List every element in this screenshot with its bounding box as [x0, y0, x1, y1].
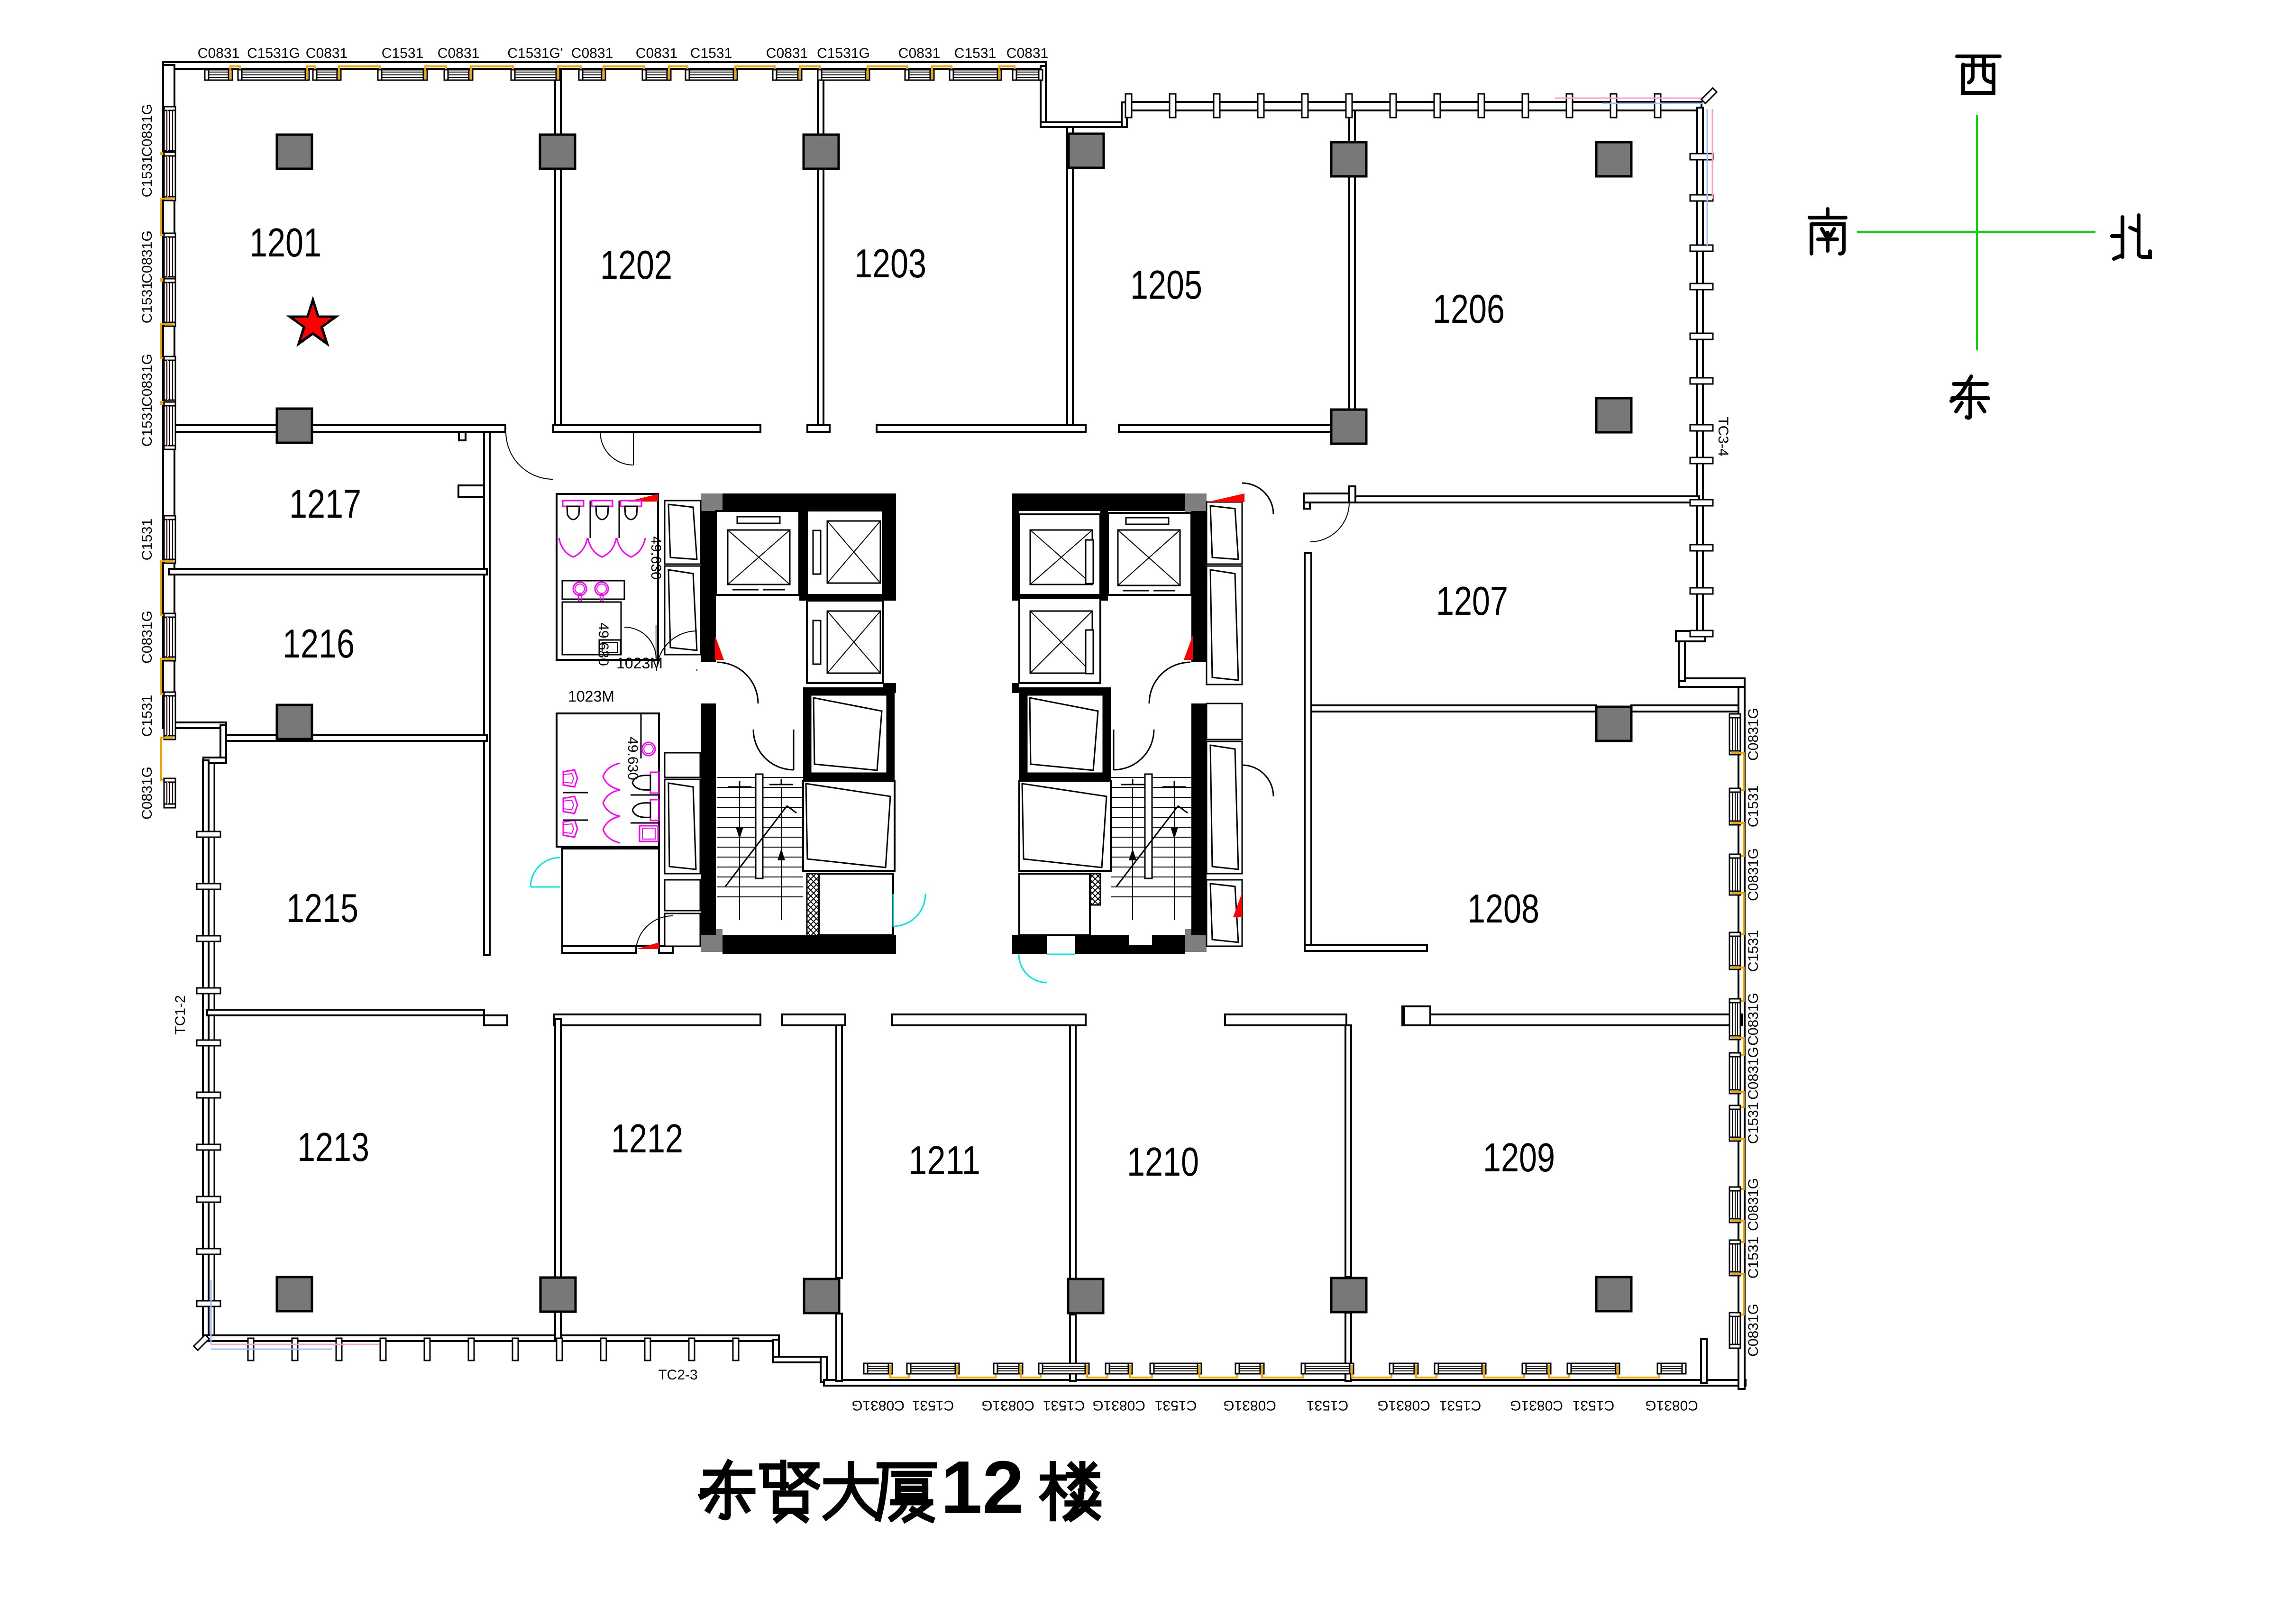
svg-text:C1531: C1531: [690, 46, 732, 61]
svg-text:C1531: C1531: [912, 1397, 954, 1413]
svg-text:1203: 1203: [854, 241, 926, 286]
svg-text:C0831G: C0831G: [1746, 848, 1761, 901]
svg-text:C1531: C1531: [1307, 1397, 1348, 1413]
svg-text:C1531G: C1531G: [817, 46, 870, 61]
svg-text:1205: 1205: [1130, 263, 1202, 308]
svg-text:C0831G: C0831G: [139, 104, 155, 157]
svg-text:C0831: C0831: [198, 46, 239, 61]
svg-text:C0831G: C0831G: [139, 354, 155, 407]
svg-text:C0831: C0831: [571, 46, 613, 61]
svg-text:C0831G: C0831G: [139, 767, 155, 820]
svg-text:C0831G: C0831G: [1223, 1397, 1276, 1413]
svg-text:1217: 1217: [289, 482, 361, 527]
svg-text:TC1-2: TC1-2: [173, 995, 188, 1034]
svg-text:C0831G: C0831G: [1746, 1047, 1761, 1100]
svg-text:1212: 1212: [611, 1116, 683, 1161]
svg-text:49.630: 49.630: [625, 737, 640, 780]
svg-text:1206: 1206: [1433, 287, 1505, 332]
svg-text:C0831G: C0831G: [1092, 1397, 1145, 1413]
svg-text:1209: 1209: [1483, 1135, 1555, 1180]
svg-text:C1531: C1531: [139, 282, 155, 323]
svg-text:C1531: C1531: [139, 695, 155, 737]
svg-text:C0831: C0831: [766, 46, 808, 61]
svg-text:C0831G: C0831G: [1746, 1178, 1761, 1231]
svg-text:C0831: C0831: [306, 46, 348, 61]
svg-text:C1531G: C1531G: [247, 46, 300, 61]
svg-text:C0831: C0831: [1006, 46, 1048, 61]
svg-text:C1531: C1531: [1746, 1237, 1761, 1278]
svg-text:C0831G: C0831G: [981, 1397, 1034, 1413]
svg-text:1216: 1216: [283, 621, 355, 667]
svg-text:C0831G: C0831G: [1746, 1304, 1761, 1357]
svg-text:C1531: C1531: [1043, 1397, 1085, 1413]
svg-text:1201: 1201: [249, 220, 321, 265]
svg-text:1023M: 1023M: [616, 655, 663, 672]
svg-text:C0831G: C0831G: [139, 230, 155, 283]
svg-text:1211: 1211: [908, 1138, 980, 1183]
svg-text:1210: 1210: [1127, 1140, 1199, 1185]
svg-text:1215: 1215: [286, 886, 358, 931]
svg-text:C1531: C1531: [1155, 1397, 1197, 1413]
svg-text:C0831G: C0831G: [1746, 708, 1761, 761]
svg-text:TC2-3: TC2-3: [658, 1367, 697, 1383]
svg-text:49.630: 49.630: [595, 622, 611, 666]
svg-text:1208: 1208: [1467, 886, 1539, 931]
svg-text:C0831G: C0831G: [1746, 993, 1761, 1046]
svg-text:1213: 1213: [297, 1125, 369, 1170]
svg-text:C1531: C1531: [1439, 1397, 1481, 1413]
svg-text:C1531: C1531: [1746, 930, 1761, 972]
svg-text:1207: 1207: [1436, 579, 1508, 624]
svg-text:C1531: C1531: [1573, 1397, 1614, 1413]
svg-text:C1531: C1531: [139, 155, 155, 197]
svg-text:C1531G': C1531G': [507, 46, 563, 61]
svg-text:C1531: C1531: [139, 405, 155, 447]
svg-text:C1531: C1531: [1746, 785, 1761, 827]
svg-text:C0831G: C0831G: [1377, 1397, 1430, 1413]
svg-text:1202: 1202: [600, 243, 672, 288]
svg-text:C1531: C1531: [1746, 1102, 1761, 1144]
svg-text:C0831G: C0831G: [1510, 1397, 1563, 1413]
svg-text:C1531: C1531: [139, 519, 155, 560]
svg-text:49.630: 49.630: [648, 536, 664, 580]
svg-text:12: 12: [941, 1446, 1024, 1529]
svg-text:C0831G: C0831G: [851, 1397, 905, 1413]
svg-text:C0831: C0831: [438, 46, 479, 61]
svg-text:C0831G: C0831G: [139, 611, 155, 664]
svg-text:C1531: C1531: [382, 46, 423, 61]
svg-text:1023M: 1023M: [568, 688, 614, 705]
svg-text:C0831G: C0831G: [1645, 1397, 1698, 1413]
svg-text:C1531: C1531: [954, 46, 996, 61]
svg-text:C0831: C0831: [636, 46, 677, 61]
svg-text:TC3-4: TC3-4: [1715, 417, 1731, 456]
svg-text:C0831: C0831: [898, 46, 940, 61]
